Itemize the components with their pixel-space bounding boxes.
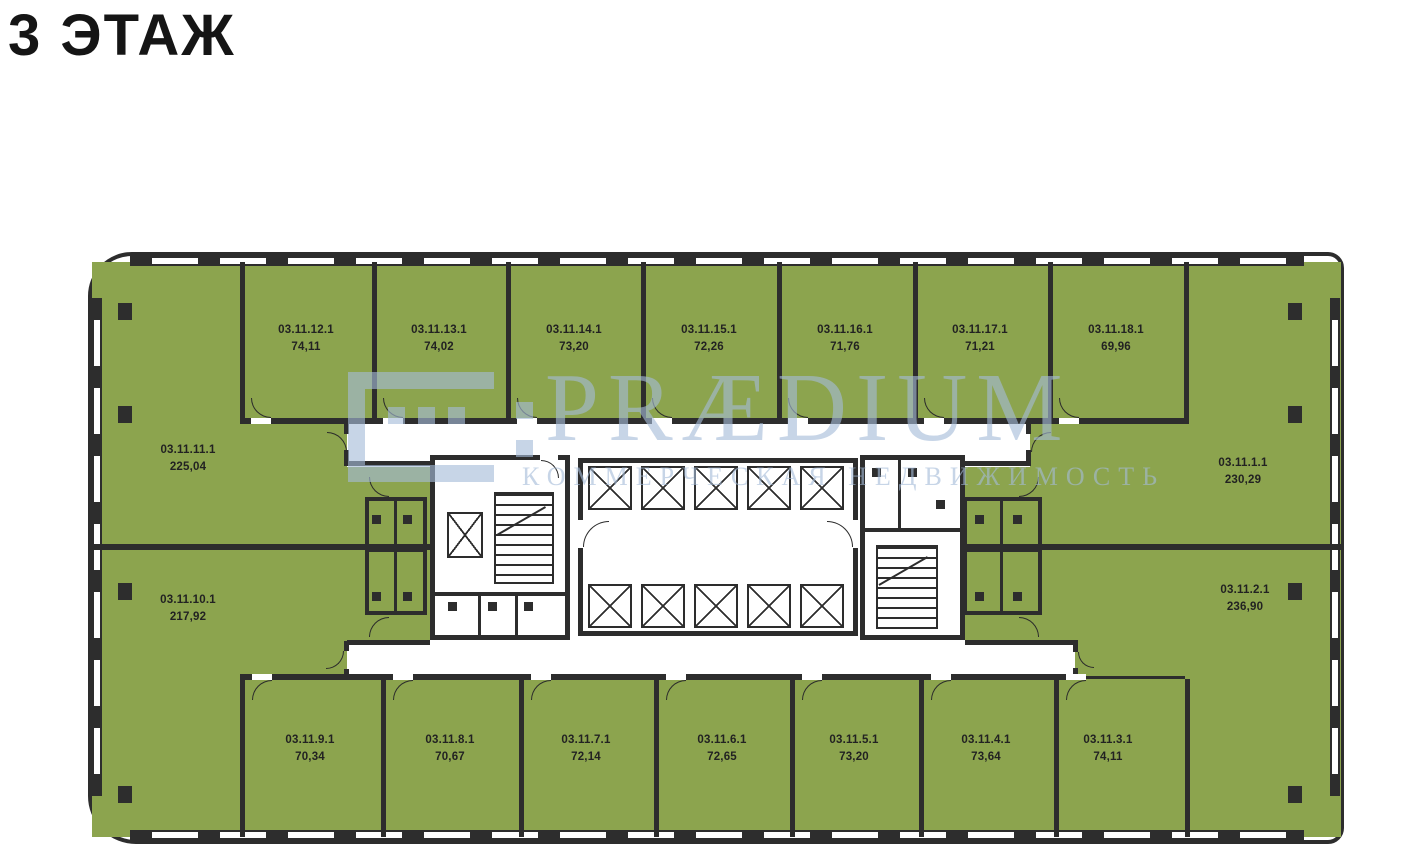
room-label: 03.11.4.173,64 — [931, 732, 1041, 764]
door-opening — [1066, 674, 1086, 680]
room-label: 03.11.16.171,76 — [790, 322, 900, 354]
elevator — [694, 584, 738, 628]
room-number: 03.11.2.1 — [1190, 582, 1300, 599]
room-area — [92, 262, 240, 423]
wall — [344, 450, 349, 466]
room-label: 03.11.5.173,20 — [799, 732, 909, 764]
room-area — [92, 679, 240, 837]
door-opening — [853, 520, 858, 548]
elevator — [800, 584, 844, 628]
room-area — [1075, 645, 1341, 679]
wall — [777, 262, 782, 420]
door-opening — [666, 674, 686, 680]
door-opening — [788, 418, 808, 424]
wall — [347, 640, 430, 645]
room-label: 03.11.15.172,26 — [654, 322, 764, 354]
wall — [1073, 640, 1078, 652]
room-label: 03.11.14.173,20 — [519, 322, 629, 354]
floor-plan: 03.11.1.1230,2903.11.2.1236,9003.11.3.17… — [0, 0, 1404, 856]
elevator — [641, 466, 685, 510]
wall — [1184, 262, 1189, 420]
room-area — [1189, 679, 1341, 837]
door-opening — [1059, 418, 1079, 424]
wc-fixture — [448, 602, 457, 611]
room-area-value: 72,14 — [531, 749, 641, 766]
room-area-value: 73,64 — [931, 749, 1041, 766]
room-area-value: 236,90 — [1190, 599, 1300, 616]
room-number: 03.11.3.1 — [1053, 732, 1163, 749]
wall — [435, 592, 565, 596]
wall — [913, 262, 918, 420]
wall — [965, 640, 1075, 645]
wc-fixture — [372, 515, 381, 524]
room-number: 03.11.4.1 — [931, 732, 1041, 749]
door-opening — [393, 674, 413, 680]
wc-fixture — [936, 500, 945, 509]
wall — [654, 679, 659, 837]
elevator — [800, 466, 844, 510]
wall — [372, 262, 377, 420]
wall — [240, 679, 245, 837]
wc-fixture — [488, 602, 497, 611]
wc-fixture — [908, 468, 917, 477]
room-number: 03.11.16.1 — [790, 322, 900, 339]
wall — [381, 679, 386, 837]
room-label: 03.11.12.174,11 — [251, 322, 361, 354]
wall — [344, 641, 349, 651]
wall — [1073, 676, 1185, 679]
door-opening — [652, 418, 672, 424]
wall — [394, 497, 397, 615]
room-area-value: 74,02 — [384, 339, 494, 356]
room-area-value: 70,67 — [395, 749, 505, 766]
room-number: 03.11.5.1 — [799, 732, 909, 749]
room-number: 03.11.10.1 — [133, 592, 243, 609]
wall — [515, 594, 518, 636]
room-area-value: 73,20 — [799, 749, 909, 766]
room-area — [1189, 262, 1341, 423]
wall — [963, 549, 1042, 552]
wall — [365, 549, 427, 552]
room-label: 03.11.18.169,96 — [1061, 322, 1171, 354]
wall — [347, 461, 430, 466]
door-opening — [383, 418, 403, 424]
column — [118, 303, 132, 320]
room-label: 03.11.2.1236,90 — [1190, 582, 1300, 614]
wall — [864, 528, 962, 532]
room-label: 03.11.3.174,11 — [1053, 732, 1163, 764]
elevator — [588, 584, 632, 628]
wc-fixture — [403, 515, 412, 524]
room-area-value: 71,76 — [790, 339, 900, 356]
wall — [478, 594, 481, 636]
room-label: 03.11.17.171,21 — [925, 322, 1035, 354]
door-opening — [531, 674, 551, 680]
column — [118, 786, 132, 803]
wc-fixture — [1013, 592, 1022, 601]
wall — [1000, 497, 1003, 615]
window-band-bottom — [130, 830, 1304, 840]
wc-fixture — [872, 468, 881, 477]
wall — [240, 674, 1078, 680]
room-number: 03.11.13.1 — [384, 322, 494, 339]
door-opening — [802, 674, 822, 680]
wall — [519, 679, 524, 837]
wall — [344, 418, 349, 434]
door-opening — [924, 418, 944, 424]
room-label: 03.11.9.170,34 — [255, 732, 365, 764]
wc-fixture — [372, 592, 381, 601]
room-area-value: 72,26 — [654, 339, 764, 356]
wall — [1026, 418, 1031, 434]
room-label: 03.11.8.170,67 — [395, 732, 505, 764]
wc-fixture — [524, 602, 533, 611]
room-number: 03.11.17.1 — [925, 322, 1035, 339]
wc-fixture — [975, 592, 984, 601]
elevator — [694, 466, 738, 510]
room-area-value: 74,11 — [1053, 749, 1163, 766]
column — [1288, 303, 1302, 320]
elevator — [447, 512, 483, 558]
wall — [1048, 262, 1053, 420]
door-opening — [252, 674, 272, 680]
wall — [919, 679, 924, 837]
room-area-value: 217,92 — [133, 609, 243, 626]
room-number: 03.11.12.1 — [251, 322, 361, 339]
room-area-value: 74,11 — [251, 339, 361, 356]
room-area-value: 69,96 — [1061, 339, 1171, 356]
window-band-top — [130, 256, 1304, 266]
wall — [506, 262, 511, 420]
room-label: 03.11.10.1217,92 — [133, 592, 243, 624]
room-area-value: 230,29 — [1188, 472, 1298, 489]
wall — [1026, 450, 1031, 466]
room-number: 03.11.11.1 — [133, 442, 243, 459]
wall — [641, 262, 646, 420]
elevator — [588, 466, 632, 510]
elevator — [747, 466, 791, 510]
wall — [965, 461, 1030, 466]
wc-fixture — [1013, 515, 1022, 524]
room-number: 03.11.1.1 — [1188, 455, 1298, 472]
elevator — [747, 584, 791, 628]
room-number: 03.11.18.1 — [1061, 322, 1171, 339]
room-label: 03.11.13.174,02 — [384, 322, 494, 354]
column — [1288, 786, 1302, 803]
wall — [344, 669, 349, 675]
wall — [240, 262, 245, 420]
room-label: 03.11.11.1225,04 — [133, 442, 243, 474]
column — [118, 406, 132, 423]
floor-plan-page: 3 ЭТАЖ 03.11.1.1230,2903.11.2.1236,9003.… — [0, 0, 1404, 856]
staircase — [876, 545, 938, 629]
elevator — [641, 584, 685, 628]
door-opening — [931, 674, 951, 680]
room-number: 03.11.9.1 — [255, 732, 365, 749]
wall — [898, 458, 901, 530]
room-number: 03.11.6.1 — [667, 732, 777, 749]
room-area-value: 70,34 — [255, 749, 365, 766]
room-area-value: 72,65 — [667, 749, 777, 766]
room-label: 03.11.1.1230,29 — [1188, 455, 1298, 487]
room-area-value: 73,20 — [519, 339, 629, 356]
room-area-value: 71,21 — [925, 339, 1035, 356]
column — [118, 583, 132, 600]
door-opening — [251, 418, 271, 424]
wc-fixture — [975, 515, 984, 524]
room-number: 03.11.15.1 — [654, 322, 764, 339]
room-number: 03.11.7.1 — [531, 732, 641, 749]
wc-fixture — [403, 592, 412, 601]
room-number: 03.11.14.1 — [519, 322, 629, 339]
wall — [790, 679, 795, 837]
room-label: 03.11.6.172,65 — [667, 732, 777, 764]
room-label: 03.11.7.172,14 — [531, 732, 641, 764]
column — [1288, 406, 1302, 423]
wall — [1185, 679, 1190, 837]
door-opening — [517, 418, 537, 424]
room-number: 03.11.8.1 — [395, 732, 505, 749]
room-area-value: 225,04 — [133, 459, 243, 476]
